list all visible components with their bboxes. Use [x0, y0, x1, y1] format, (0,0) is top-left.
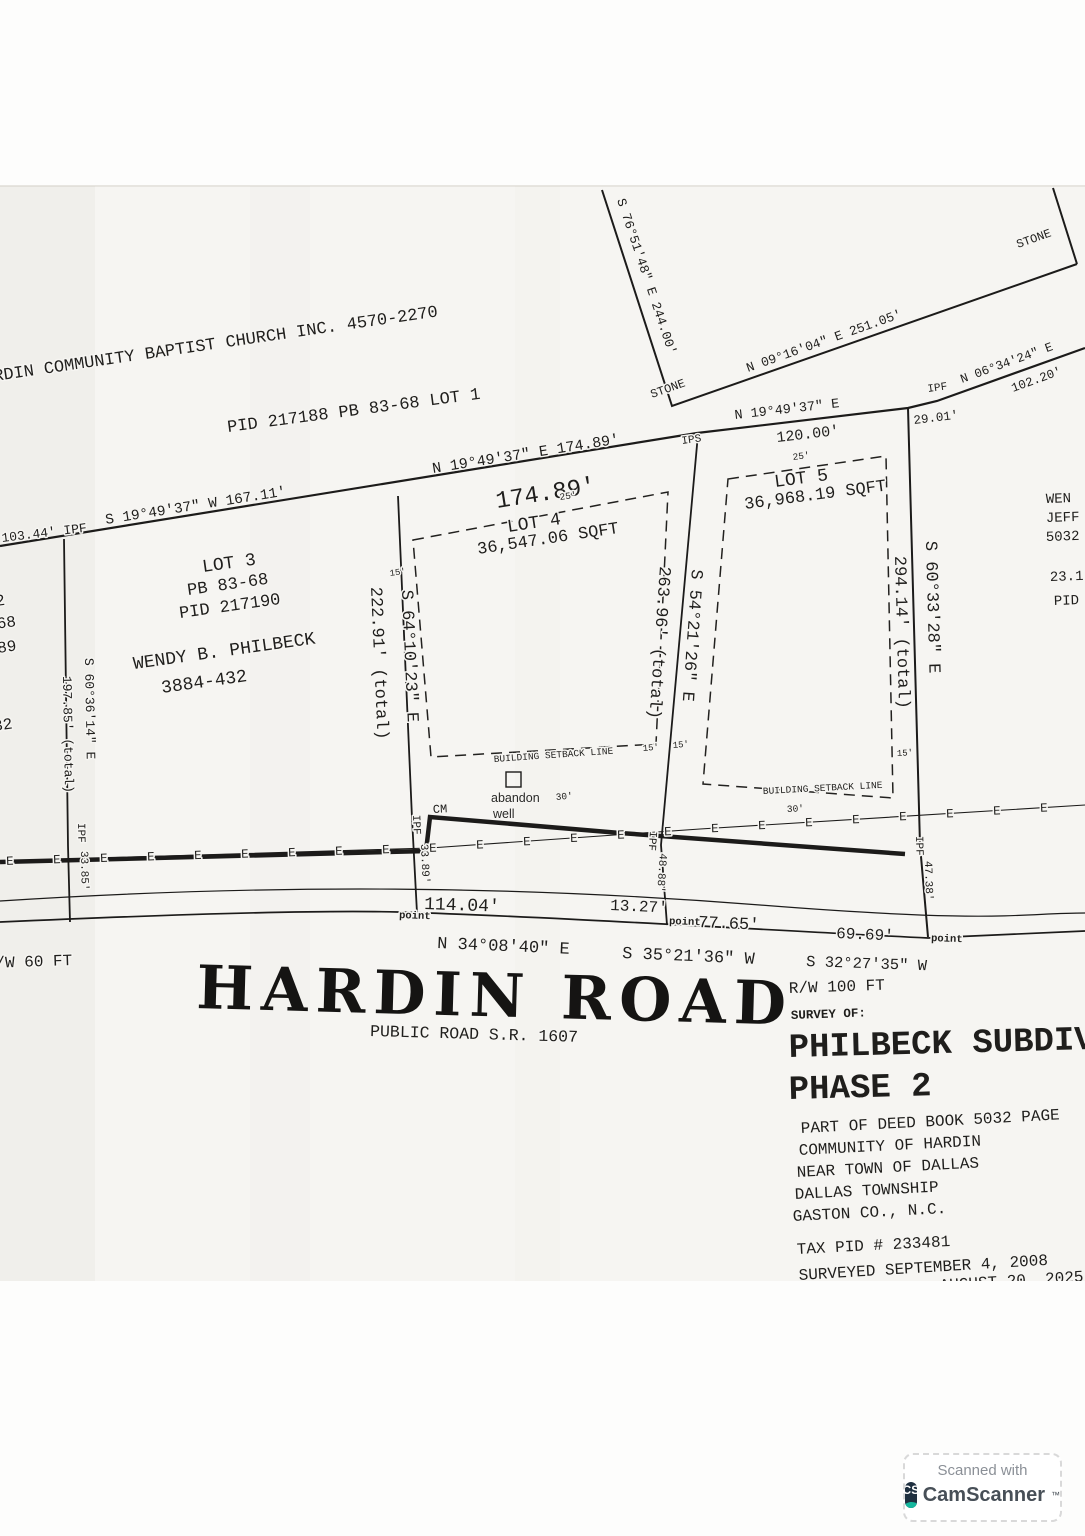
fence-e-mark: E — [993, 804, 1001, 818]
fence-e-mark: E — [335, 845, 343, 859]
fence-e-mark: E — [382, 843, 390, 857]
camscanner-brand-label: CamScanner — [923, 1484, 1045, 1507]
fence-e-mark: E — [147, 850, 155, 864]
east-adjoiner-fragment: JEFF — [1046, 510, 1080, 527]
fence-e-mark: E — [946, 807, 954, 821]
fence-e-mark: E — [758, 819, 766, 833]
survey-of-label: SURVEY OF: — [791, 1006, 866, 1023]
fence-e-mark: E — [241, 847, 249, 861]
lot5-east-ipf-label: IPF — [912, 836, 925, 856]
lot4-east-ipf-label: IPF — [645, 831, 658, 852]
fence-e-mark: E — [194, 849, 202, 863]
camscanner-trademark: ™ — [1051, 1490, 1060, 1500]
fence-e-mark: E — [476, 838, 484, 852]
road-distance-114: 114.04' — [424, 895, 500, 918]
fence-e-mark: E — [570, 832, 578, 846]
lot5-east-tie-label: 47.38' — [921, 861, 934, 901]
fence-e-mark: E — [852, 813, 860, 827]
west-adjoiner-fragment: 89 — [0, 637, 18, 657]
plat-drawing: HARDIN COMMUNITY BAPTIST CHURCH INC. 457… — [0, 0, 1085, 1536]
right-of-way-100-label: R/W 100 FT — [789, 977, 886, 998]
point-marker-label: point — [931, 933, 963, 946]
lot3-west-distance-label: 197.85' (total) — [59, 676, 76, 793]
fence-e-mark: E — [1040, 801, 1048, 815]
road-distance-69: 69.69' — [836, 925, 894, 945]
lot3-west-tie-label: 33.85' — [77, 851, 90, 891]
lot5-side-setback-label: 15' — [672, 740, 689, 751]
road-distance-77: 77.65' — [698, 914, 760, 936]
lot3-west-bearing-label: S 60°36'14" E — [81, 658, 98, 760]
fence-e-mark: E — [523, 835, 531, 849]
abandon-well-label-line2: well — [492, 807, 515, 821]
lot5-side-setback-label: 15' — [897, 748, 914, 759]
lot3-west-ipf-label: IPF — [74, 823, 86, 843]
fence-e-mark: E — [899, 810, 907, 824]
fence-e-mark: E — [288, 846, 296, 860]
fence-e-mark: E — [53, 853, 61, 867]
fence-e-mark: E — [805, 816, 813, 830]
east-adjoiner-fragment: PID — [1054, 593, 1080, 610]
camscanner-watermark: Scanned with CS CamScanner™ — [903, 1453, 1062, 1522]
east-adjoiner-fragment: WEN — [1046, 491, 1072, 508]
fence-e-mark: E — [100, 852, 108, 866]
scan-shadow-streak — [515, 186, 560, 1282]
east-adjoiner-fragment: 5032 — [1046, 529, 1080, 546]
fence-e-mark: E — [6, 855, 14, 869]
road-distance-13: 13.27' — [610, 897, 668, 917]
east-adjoiner-fragment: 23.1 — [1050, 569, 1084, 586]
lot3-east-ipf-label: IPF — [409, 815, 422, 835]
lot5-east-bearing-label: S 60°33'28" E — [920, 541, 942, 674]
lot5-east-distance-label: 294.14' (total) — [889, 556, 912, 709]
lot5-rear-setback-label: 30' — [787, 803, 805, 815]
lot4-side-setback-label: 15' — [642, 743, 659, 754]
right-of-way-60-label: R/W 60 FT — [0, 952, 73, 973]
fence-e-mark: E — [664, 825, 672, 839]
abandon-well-label-line1: abandon — [491, 791, 540, 805]
subdivision-name-line2: PHASE 2 — [788, 1068, 932, 1110]
point-marker-label: point — [399, 910, 431, 923]
lot4-rear-setback-label: 30' — [555, 791, 573, 803]
fence-e-mark: E — [429, 842, 437, 856]
scan-shadow-streak — [250, 186, 310, 1282]
scanned-plat-page: HARDIN COMMUNITY BAPTIST CHURCH INC. 457… — [0, 0, 1085, 1536]
camscanner-logo-icon: CS — [905, 1482, 917, 1508]
lot5-front-setback-label: 25' — [792, 450, 810, 463]
point-marker-label: point — [669, 916, 701, 929]
fence-e-mark: E — [617, 828, 625, 842]
cm-marker-label: CM — [432, 802, 447, 817]
fence-e-mark: E — [711, 822, 719, 836]
scan-shadow-streak — [0, 186, 95, 1282]
camscanner-scanned-with-label: Scanned with — [905, 1462, 1060, 1479]
